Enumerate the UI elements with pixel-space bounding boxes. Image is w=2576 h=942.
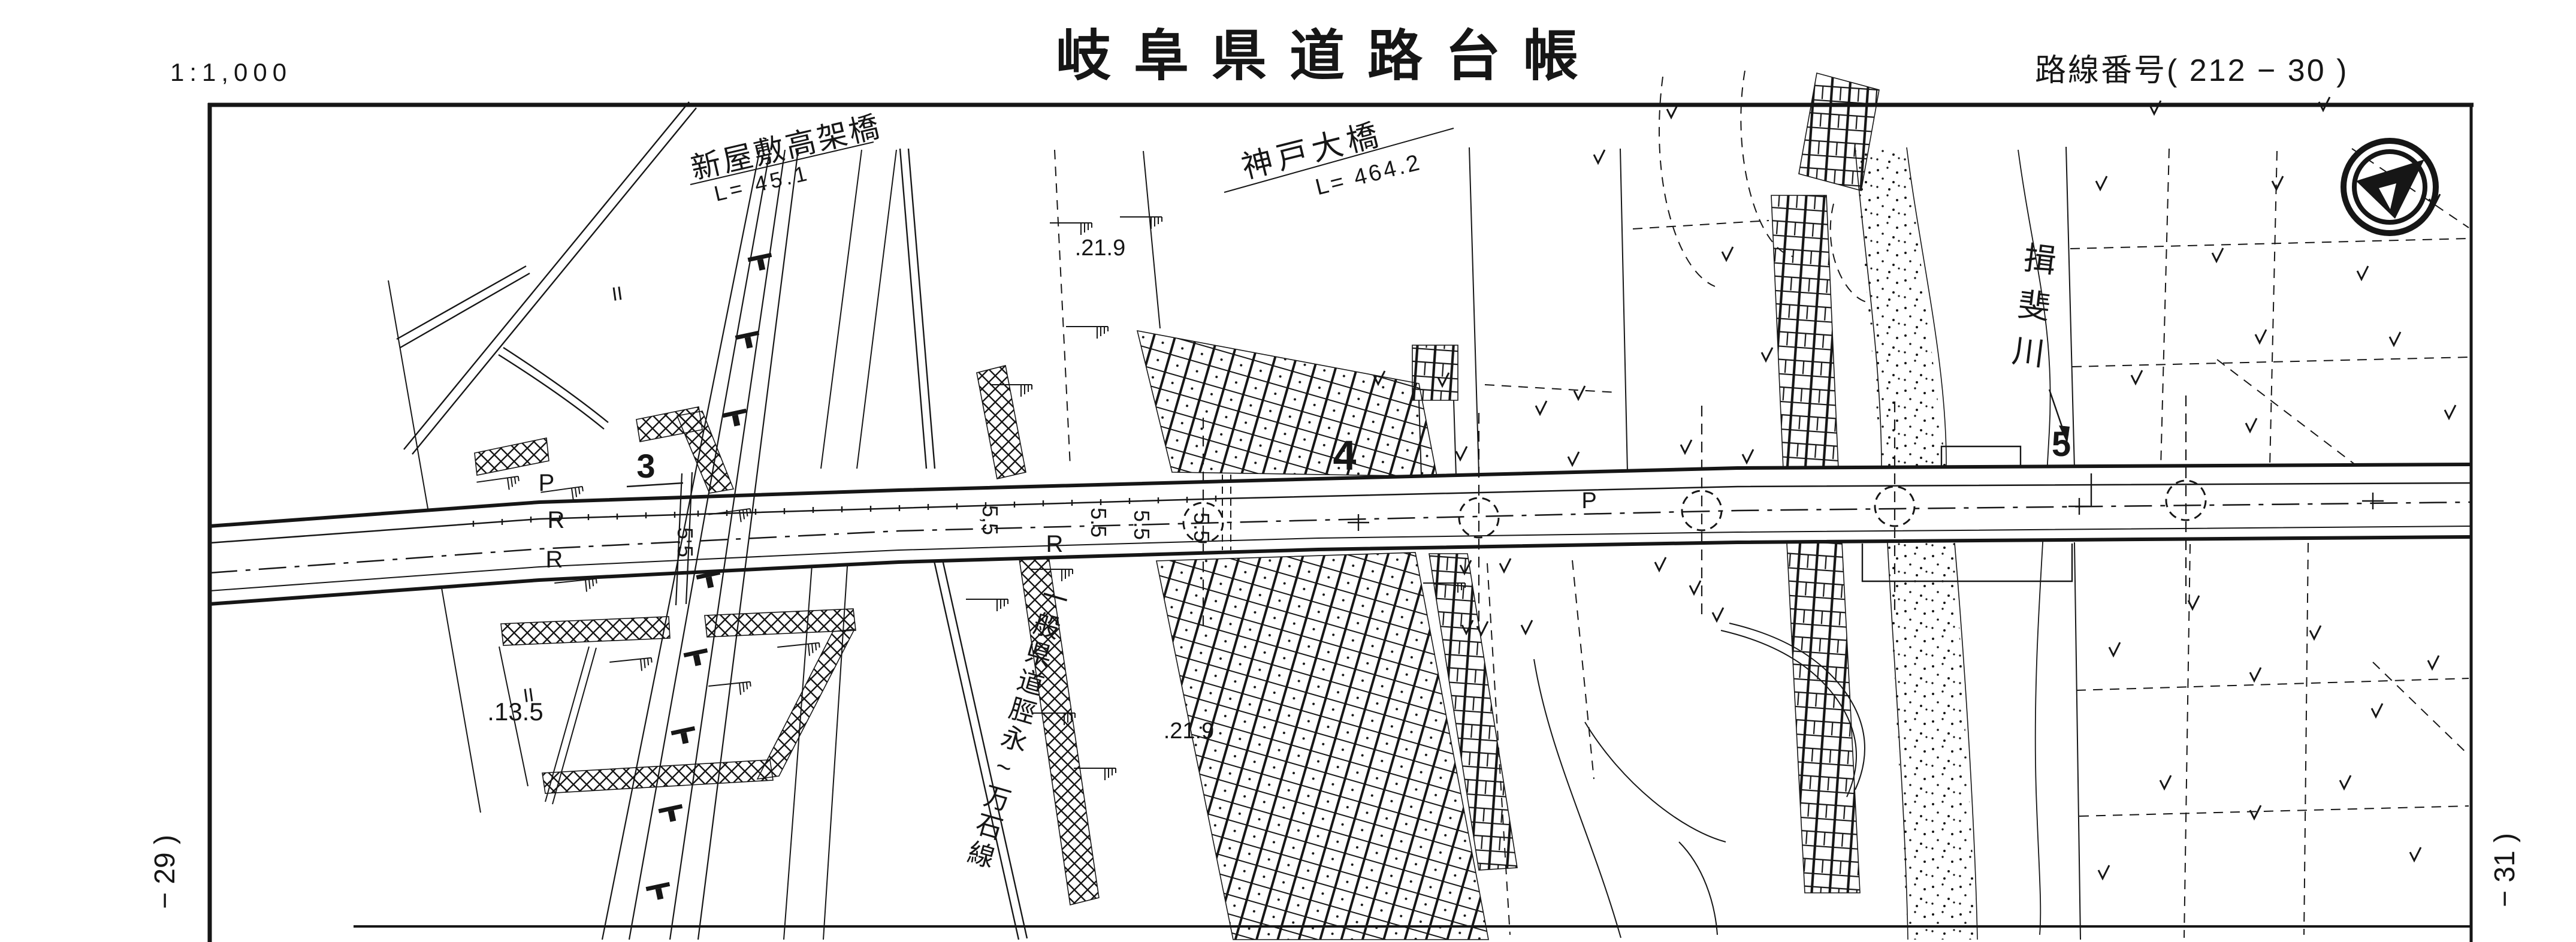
- viaduct-piers: [646, 253, 774, 902]
- adjacent-sheet-ref-left: − 29 ): [151, 835, 180, 909]
- river-arrowhead: [2059, 425, 2070, 443]
- sheet-title: 岐阜県道路台帳: [1056, 29, 1601, 84]
- scale-label: 1:1,000: [170, 60, 292, 85]
- north-arrow-icon: [2344, 141, 2436, 233]
- adjacent-sheet-ref-right: − 31 ): [2491, 833, 2520, 907]
- map-drawing: [0, 0, 2576, 942]
- road-ledger-sheet: { "header": { "scale": "1:1,000", "title…: [0, 0, 2576, 942]
- route-number-label: 路線番号( 212 − 30 ): [2035, 55, 2348, 86]
